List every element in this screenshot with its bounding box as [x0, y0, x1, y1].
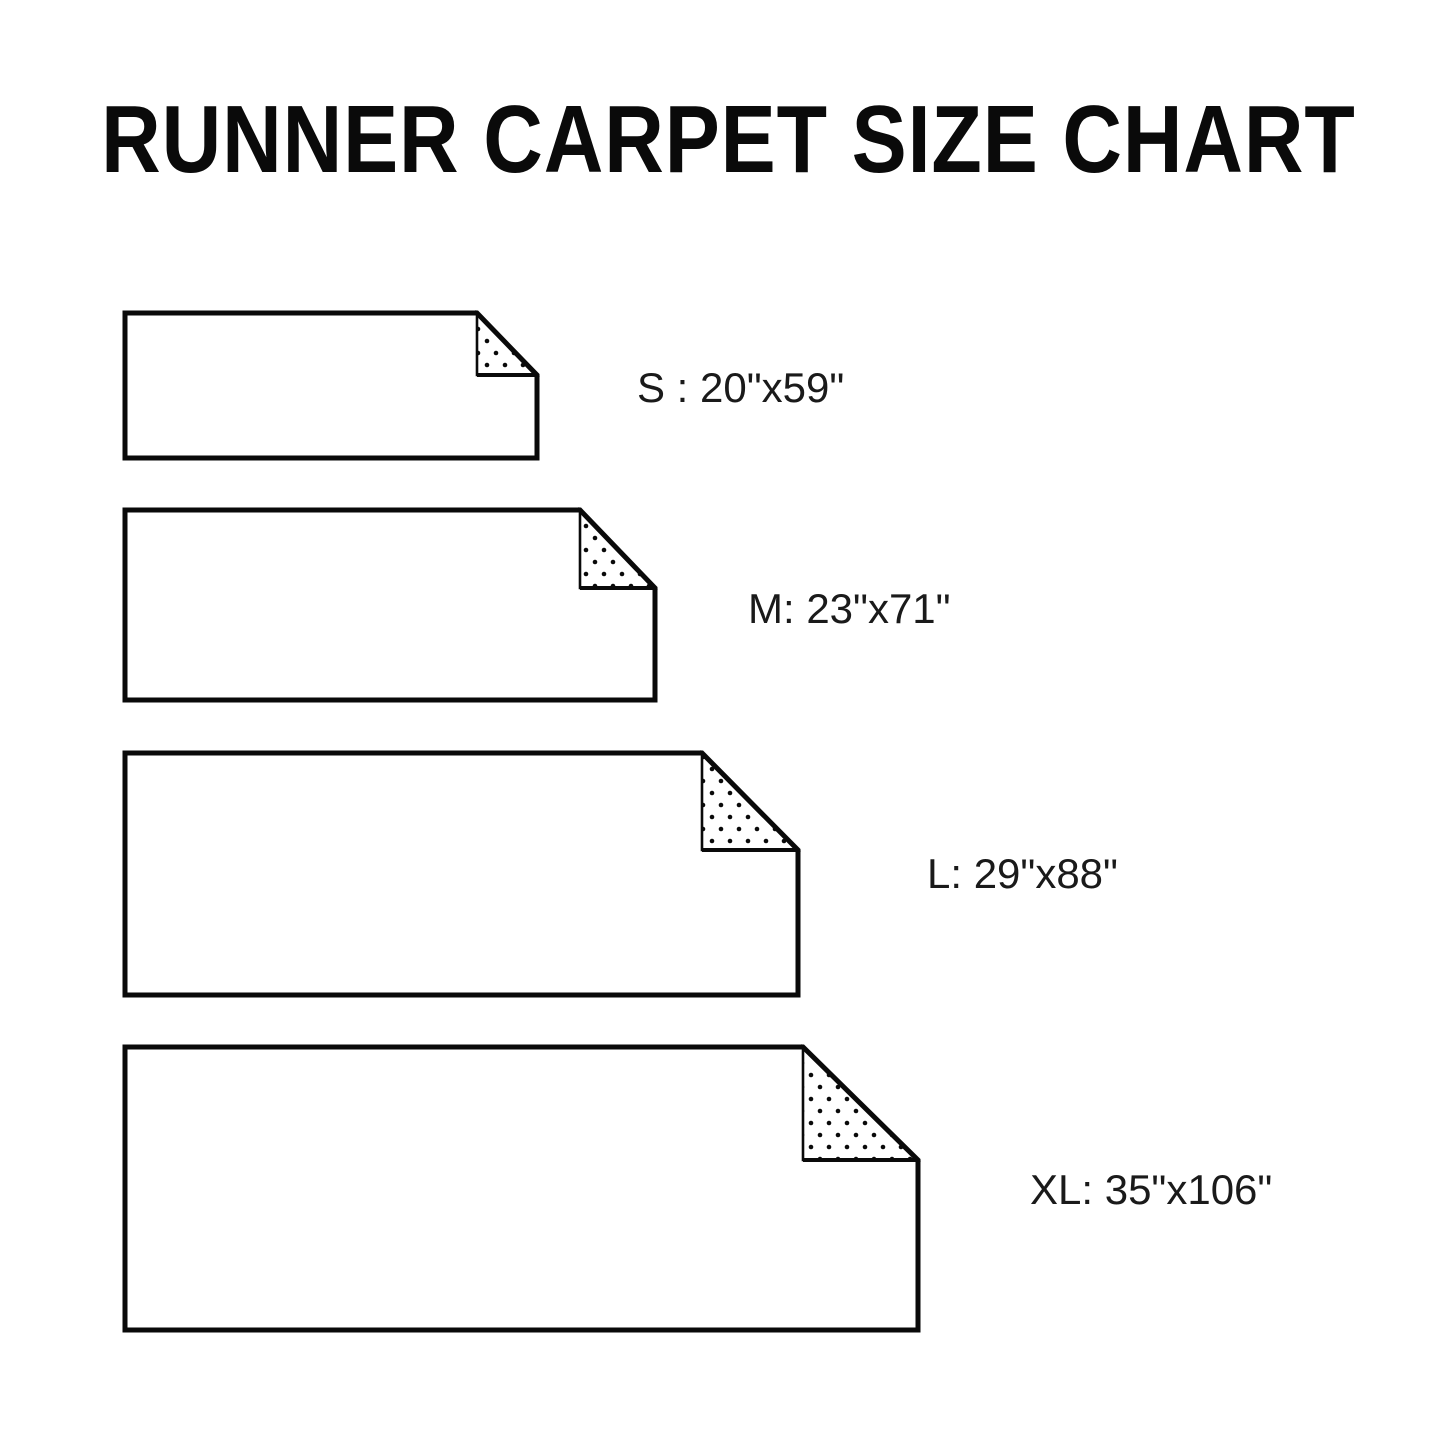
size-label-m: M: 23"x71" — [748, 588, 951, 630]
size-label-l: L: 29"x88" — [927, 853, 1118, 895]
page-title: RUNNER CARPET SIZE CHART — [101, 92, 1344, 188]
carpet-m-outline — [125, 510, 655, 700]
size-chart-page: RUNNER CARPET SIZE CHART S : 20"x59" M: … — [0, 0, 1445, 1445]
carpet-s-outline — [125, 313, 537, 458]
carpet-xl-shape — [122, 1044, 921, 1333]
carpet-l-outline — [125, 753, 798, 995]
folded-corner-xl — [803, 1047, 918, 1160]
carpet-xl-outline — [125, 1047, 918, 1330]
carpet-m-shape — [122, 507, 658, 703]
size-label-xl: XL: 35"x106" — [1030, 1169, 1272, 1211]
folded-corner-m — [580, 510, 655, 588]
carpet-l-shape — [122, 750, 801, 998]
size-label-s: S : 20"x59" — [637, 367, 844, 409]
carpet-s-shape — [122, 310, 540, 461]
folded-corner-l — [702, 753, 798, 850]
folded-corner-s — [477, 313, 537, 375]
